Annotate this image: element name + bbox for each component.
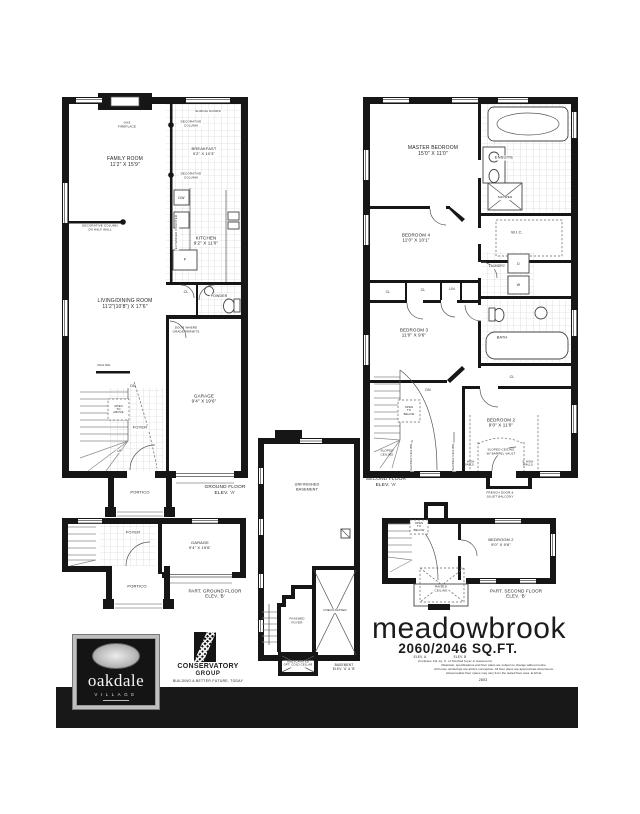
label-cl-3: CL: [509, 375, 516, 379]
second-floor-plan: [363, 97, 578, 489]
label-wic: W.I.C.: [510, 231, 524, 236]
label-decorative-column-1: DECORATIVE COLUMN: [180, 120, 203, 127]
oakdale-village-logo: oakdale VILLAGE: [72, 634, 160, 710]
label-cl-ground: CL: [183, 290, 190, 294]
label-garage-b: GARAGE 9'4" X 19'6": [189, 541, 211, 551]
builder-name-line2: GROUP: [173, 671, 243, 677]
label-ensuite: ENSUITE: [494, 156, 514, 161]
label-column-half-wall: DECORATIVE COLUMN ON HALF WALL: [82, 224, 118, 231]
label-lin: LIN: [449, 288, 454, 292]
label-open-below-b: OPEN TO BELOW: [414, 522, 425, 532]
label-french-door: FRENCH DOOR & JULIET BALCONY: [486, 491, 513, 498]
label-unfinished-basement: UNFINISHED BASEMENT: [295, 482, 320, 491]
label-sloped-ceiling: SLOPED CEILING: [380, 449, 393, 456]
basement-plan: [258, 430, 360, 676]
label-decorative-column-2: DECORATIVE COLUMN: [180, 172, 203, 179]
label-dryer: D: [517, 262, 520, 266]
label-bedroom4: BEDROOM 4 11'0" X 10'1": [402, 233, 430, 244]
label-foyer-b: FOYER: [125, 531, 142, 536]
label-portico-a: PORTICO: [130, 491, 149, 496]
builder-tagline: BUILDING A BETTER FUTURE, TODAY: [168, 679, 248, 683]
caption-ground-floor: GROUND FLOOR ELEV. 'A': [205, 485, 246, 497]
label-open-below: OPEN TO BELOW: [404, 406, 415, 416]
label-barrel-vault: SLOPED CEILING W/ BARREL VAULT: [486, 448, 517, 455]
label-sloped-ceiling-v2: SLOPED CEILING: [452, 442, 456, 471]
label-cl-1: CL: [386, 290, 391, 294]
label-extended-counter: EXTENDED COUNTER: [175, 214, 179, 250]
label-unexcavated: UNEXCAVATED: [322, 609, 348, 613]
label-foyer-a: FOYER: [132, 426, 149, 431]
label-cold-cellar: UNEXCAVATED OPT. COLD CELLAR: [283, 661, 314, 668]
label-sliding-doors: SLIDING DOORS: [194, 110, 222, 114]
label-portico-b: PORTICO: [127, 585, 146, 590]
oakdale-emblem-icon: [92, 643, 140, 669]
ground-floor-plan: [62, 93, 248, 520]
label-dn-ground: DN: [130, 384, 135, 388]
label-high-walls-2: 6' HIGH WALLS: [523, 461, 534, 468]
plan-number: 2803: [479, 678, 487, 682]
label-railing: RAILING: [97, 364, 110, 368]
conservatory-group-logo-icon: [194, 632, 216, 662]
label-garage-a: GARAGE 9'4" X 19'6": [192, 394, 217, 405]
oakdale-subtitle: VILLAGE: [94, 692, 137, 697]
label-raised-ceiling: RAISED CEILING: [433, 585, 448, 592]
label-door-grade: DOOR WHERE GRADE PERMITS: [173, 326, 200, 333]
label-breakfast: BREAKFAST 9'2" X 10'3": [191, 147, 218, 157]
label-finished-foyer: FINISHED FOYER: [288, 617, 305, 624]
disclaimer-text: Materials, specifications and floor plan…: [419, 664, 569, 676]
label-shower: SHOWER: [497, 196, 513, 200]
caption-part-ground: PART. GROUND FLOOR ELEV. 'B': [188, 589, 241, 600]
label-bedroom2-b: BEDROOM 2 9'0" X 9'6": [488, 538, 513, 548]
label-up-a: UP: [116, 449, 123, 453]
model-sqft: 2060/2046 SQ.FT.: [380, 641, 536, 656]
label-dw: DW: [178, 195, 184, 199]
caption-second-floor: SECOND FLOOR ELEV. 'A': [366, 477, 406, 489]
caption-basement: BASEMENT ELEV. 'A' & 'B': [333, 664, 355, 672]
label-kitchen: KITCHEN 9'2" X 11'0": [193, 236, 219, 247]
label-dn-second: DN: [425, 388, 430, 392]
label-bedroom2: BEDROOM 2 9'0" X 11'0": [487, 418, 515, 429]
label-gas-fireplace: GAS FIREPLACE: [118, 121, 136, 128]
label-master-bedroom: MASTER BEDROOM 15'0" X 11'0": [408, 145, 458, 157]
label-open-above: OPEN TO ABOVE: [113, 404, 123, 414]
label-living-dining: LIVING/DINING ROOM 11'2"(10'8") X 17'6": [98, 298, 153, 310]
builder-name-line1: CONSERVATORY: [173, 663, 243, 670]
label-washer: W: [517, 283, 520, 287]
oakdale-divider: [103, 700, 129, 701]
label-laundry: LAUNDRY: [488, 265, 506, 269]
label-sloped-ceiling-v1: SLOPED CEILING: [410, 442, 414, 471]
label-bath: BATH: [496, 336, 508, 341]
label-fridge: F: [184, 258, 187, 263]
label-bedroom3: BEDROOM 3 11'0" X 9'6": [400, 328, 428, 339]
label-family-room: FAMILY ROOM 11'2" X 15'9": [107, 156, 143, 168]
label-powder: POWDER: [210, 294, 229, 298]
oakdale-name: oakdale: [88, 672, 144, 689]
floor-plan-page: GAS FIREPLACE SLIDING DOORS DECORATIVE C…: [0, 0, 640, 814]
label-cl-2: CL: [421, 288, 426, 292]
label-high-walls-1: 6' HIGH WALLS: [464, 461, 475, 468]
caption-part-second: PART. SECOND FLOOR ELEV. 'B': [490, 589, 542, 600]
